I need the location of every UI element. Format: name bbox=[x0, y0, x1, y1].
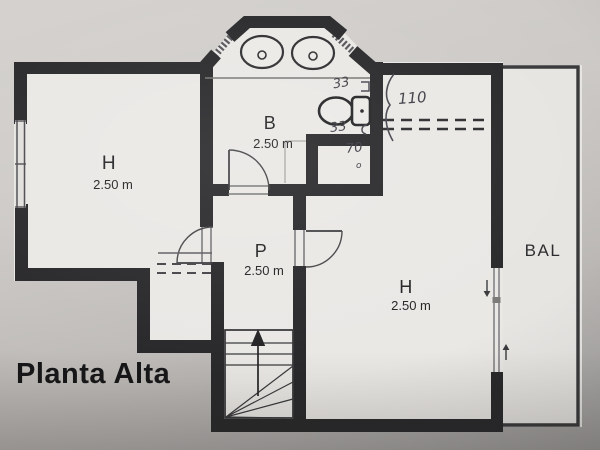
room-size-h-left: 2.50 m bbox=[93, 177, 133, 192]
wall-hleft-b-divider bbox=[200, 62, 213, 227]
sink-icon-right bbox=[292, 37, 334, 69]
room-label-h-right: H bbox=[399, 277, 413, 298]
wall-nook-bottom bbox=[137, 340, 223, 353]
wall-top-right bbox=[372, 63, 503, 75]
wall-hleft-bottom bbox=[15, 268, 149, 281]
wall-right-upper bbox=[491, 63, 503, 268]
plan-title: Planta Alta bbox=[16, 358, 170, 391]
wall-b-right bbox=[370, 62, 383, 196]
wall-left-upper bbox=[14, 62, 27, 124]
wall-shower-left bbox=[306, 134, 318, 196]
room-size-h-right: 2.50 m bbox=[391, 298, 431, 313]
room-label-b: B bbox=[264, 113, 277, 134]
wall-b-bottom-stub bbox=[213, 184, 229, 196]
room-size-b: 2.50 m bbox=[253, 136, 293, 151]
room-size-p: 2.50 m bbox=[244, 263, 284, 278]
wall-right-lower bbox=[491, 372, 503, 432]
wall-p-right-lower bbox=[293, 266, 306, 432]
window-left-wall bbox=[15, 120, 26, 208]
annotation-shower-sub: o bbox=[356, 161, 362, 171]
wall-left-lower bbox=[15, 204, 28, 270]
annotation-window-height: 110 bbox=[397, 88, 427, 108]
wall-stair-left bbox=[211, 262, 224, 432]
wall-p-right-upper bbox=[293, 184, 306, 230]
annotation-toilet-top: 33 bbox=[332, 75, 351, 93]
annotation-shower-width: 70 bbox=[345, 140, 363, 157]
annotation-toilet-bottom: 33 bbox=[329, 119, 347, 136]
wall-top-left bbox=[14, 62, 206, 74]
wall-b-bottom bbox=[268, 184, 383, 196]
room-label-h-left: H bbox=[102, 153, 116, 175]
room-label-p: P bbox=[255, 241, 268, 262]
wall-bottom bbox=[211, 419, 503, 432]
sink-icon-left bbox=[241, 36, 283, 68]
balcony-label: BAL bbox=[525, 241, 562, 261]
floor-plan-photo: H 2.50 m B 2.50 m P 2.50 m H 2.50 m BAL … bbox=[0, 0, 600, 450]
